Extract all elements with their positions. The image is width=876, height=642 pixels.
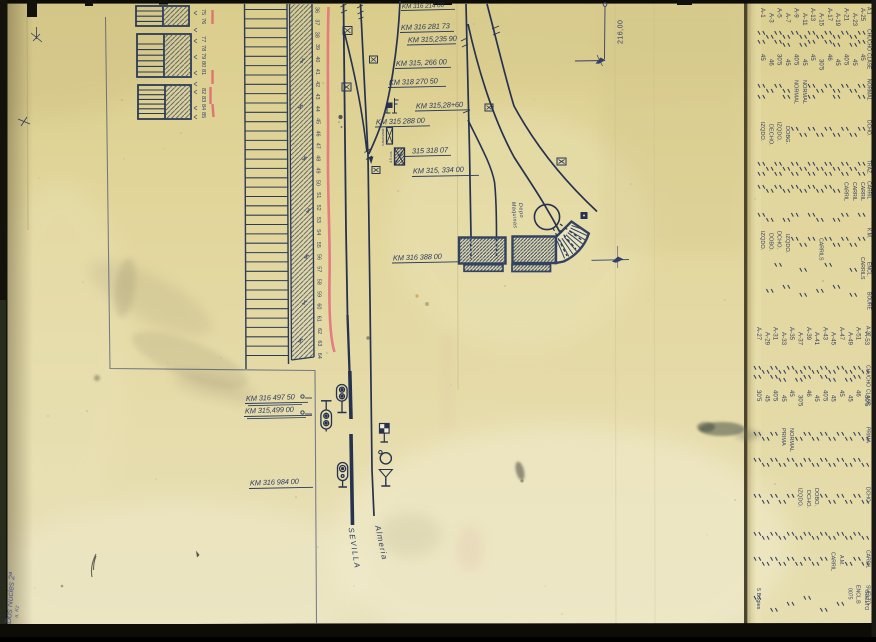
svg-text:KM 318 270 50: KM 318 270 50 (389, 76, 439, 87)
svg-text:46: 46 (314, 131, 320, 137)
svg-text:46: 46 (767, 59, 773, 66)
svg-text:NORMAL: NORMAL (866, 79, 872, 101)
svg-text:A-7: A-7 (784, 13, 791, 23)
svg-text:30’5: 30’5 (755, 390, 761, 402)
svg-text:45: 45 (788, 390, 794, 397)
svg-text:TRAZ.: TRAZ. (866, 160, 872, 174)
svg-text:A-43: A-43 (821, 327, 828, 341)
svg-text:63: 63 (316, 340, 322, 346)
svg-text:30’5: 30’5 (776, 54, 782, 66)
svg-text:30’5: 30’5 (797, 395, 803, 407)
svg-text:77: 77 (200, 36, 206, 42)
svg-text:84: 84 (200, 104, 206, 110)
svg-text:50: 50 (315, 180, 321, 186)
svg-text:DCHO.: DCHO. (866, 120, 872, 136)
svg-text:79: 79 (200, 53, 206, 59)
svg-text:A-13: A-13 (809, 8, 816, 22)
svg-text:45: 45 (830, 395, 836, 402)
svg-text:A-49: A-49 (846, 332, 853, 346)
svg-text:46: 46 (826, 54, 832, 61)
svg-text:KM 316 281 73: KM 316 281 73 (401, 21, 451, 32)
svg-text:45: 45 (846, 395, 852, 402)
svg-text:60: 60 (316, 303, 322, 309)
svg-text:40’5: 40’5 (772, 390, 778, 402)
svg-text:A.1: A.1 (866, 7, 872, 15)
svg-text:45: 45 (763, 395, 769, 402)
svg-text:44: 44 (314, 106, 320, 112)
svg-text:45: 45 (780, 395, 786, 402)
svg-text:81: 81 (200, 69, 206, 75)
svg-text:DOBO.: DOBO. (813, 488, 819, 506)
svg-text:62: 62 (316, 328, 322, 334)
svg-text:Depo: Depo (517, 203, 524, 219)
svg-text:80: 80 (200, 61, 206, 67)
svg-text:41: 41 (314, 69, 320, 75)
svg-text:ENCL.B: ENCL.B (855, 585, 861, 604)
svg-text:CARRIL: CARRIL (843, 182, 849, 201)
svg-text:DCHO.: DCHO. (776, 231, 782, 249)
svg-text:CARRIL: CARRIL (865, 550, 871, 569)
svg-text:83: 83 (200, 96, 206, 102)
svg-text:57: 57 (315, 266, 321, 272)
svg-text:K.M.: K.M. (866, 228, 872, 238)
svg-text:A-25: A-25 (859, 8, 866, 22)
svg-text:KM 316 984 00: KM 316 984 00 (250, 477, 300, 488)
svg-text:36: 36 (314, 7, 320, 13)
svg-text:A-9: A-9 (792, 8, 799, 18)
svg-text:45: 45 (801, 59, 807, 66)
svg-text:KM 315,28+60: KM 315,28+60 (416, 100, 464, 111)
svg-text:A-47: A-47 (838, 327, 845, 341)
svg-text:NORMAL: NORMAL (801, 80, 807, 104)
svg-text:DCHO.: DCHO. (805, 490, 811, 508)
svg-text:CARRIL: CARRIL (866, 181, 872, 200)
svg-text:78: 78 (200, 45, 206, 51)
svg-text:64: 64 (316, 353, 322, 359)
svg-text:KM 315, 266 00: KM 315, 266 00 (396, 57, 448, 68)
svg-text:A-39: A-39 (805, 327, 812, 341)
svg-text:49: 49 (315, 168, 321, 174)
svg-text:37: 37 (314, 19, 320, 25)
svg-text:61: 61 (316, 316, 322, 322)
svg-text:45: 45 (809, 54, 815, 61)
svg-text:KM 316 497 50: KM 316 497 50 (246, 392, 296, 403)
svg-text:A-37: A-37 (797, 332, 804, 346)
svg-text:KM 316 388 00: KM 316 388 00 (393, 252, 443, 263)
svg-text:CARRILS: CARRILS (859, 257, 865, 280)
svg-text:PRIMA: PRIMA (865, 427, 871, 444)
svg-text:216,00: 216,00 (618, 20, 625, 44)
svg-text:53: 53 (315, 217, 321, 223)
svg-text:KM 315,235 90: KM 315,235 90 (408, 34, 458, 45)
svg-text:45: 45 (834, 59, 840, 66)
svg-text:46: 46 (855, 390, 861, 397)
svg-text:A-31: A-31 (772, 327, 779, 341)
svg-text:KM 315 288 00: KM 315 288 00 (376, 116, 426, 127)
svg-text:48: 48 (315, 155, 321, 161)
svg-text:42: 42 (314, 81, 320, 87)
svg-text:CARRIL: CARRIL (859, 182, 865, 201)
svg-text:A-29: A-29 (763, 332, 770, 346)
svg-text:A-3: A-3 (767, 13, 774, 23)
svg-text:ENCL.: ENCL. (866, 262, 872, 277)
svg-text:SUELTO: SUELTO (865, 585, 871, 605)
svg-text:CLASE: CLASE (865, 389, 871, 406)
svg-text:39: 39 (314, 44, 320, 50)
svg-text:a. Kz: a. Kz (14, 605, 21, 618)
svg-text:A-51: A-51 (855, 327, 862, 341)
svg-text:CARRILS: CARRILS (818, 238, 824, 261)
svg-text:45: 45 (859, 54, 865, 61)
svg-text:45: 45 (314, 118, 320, 124)
svg-text:KM 315, 334 00: KM 315, 334 00 (413, 165, 465, 176)
svg-text:A-23: A-23 (851, 13, 858, 27)
svg-text:s.avanzada: s.avanzada (381, 129, 385, 146)
svg-text:A-35: A-35 (788, 327, 795, 341)
svg-text:BOURE: BOURE (866, 292, 872, 310)
svg-text:82: 82 (200, 88, 206, 94)
svg-text:DOBO.: DOBO. (767, 233, 773, 251)
svg-text:52: 52 (315, 205, 321, 211)
svg-text:A-15: A-15 (818, 13, 825, 27)
svg-text:A-17: A-17 (826, 8, 833, 22)
svg-text:315 318 07: 315 318 07 (412, 145, 449, 155)
svg-text:IZQDO.: IZQDO. (759, 122, 765, 142)
svg-text:59: 59 (316, 291, 322, 297)
svg-text:CHUCHO: CHUCHO (865, 365, 871, 387)
svg-text:CLASE: CLASE (866, 53, 872, 70)
svg-text:45: 45 (851, 59, 857, 66)
svg-text:43: 43 (314, 94, 320, 100)
svg-text:76: 76 (200, 18, 206, 24)
svg-text:40’5: 40’5 (843, 54, 849, 66)
svg-text:A-19: A-19 (834, 13, 841, 27)
svg-text:DCHO.: DCHO. (865, 487, 871, 503)
svg-text:NORMAL: NORMAL (792, 80, 798, 104)
svg-text:IZQDO.: IZQDO. (759, 231, 765, 251)
svg-text:DECHO.: DECHO. (767, 124, 773, 146)
svg-text:A-41: A-41 (813, 332, 820, 346)
svg-text:45: 45 (813, 395, 819, 402)
svg-text:30’5: 30’5 (818, 59, 824, 71)
svg-text:45: 45 (759, 54, 765, 61)
svg-text:55: 55 (315, 242, 321, 248)
svg-text:51: 51 (315, 192, 321, 198)
svg-text:PRIMA: PRIMA (780, 428, 786, 446)
svg-text:85: 85 (200, 112, 206, 118)
svg-text:DOBG.: DOBG. (784, 126, 790, 144)
svg-text:58: 58 (315, 279, 321, 285)
svg-text:IZQDO.: IZQDO. (784, 234, 790, 254)
svg-text:CARRIL: CARRIL (851, 182, 857, 201)
svg-text:A-21: A-21 (843, 8, 850, 22)
svg-text:45: 45 (784, 59, 790, 66)
svg-text:0075: 0075 (846, 588, 852, 600)
svg-text:A-45: A-45 (830, 332, 837, 346)
svg-text:IZQDO.: IZQDO. (776, 122, 782, 142)
svg-text:56: 56 (315, 254, 321, 260)
svg-text:75: 75 (200, 9, 206, 15)
svg-text:CARRIL: CARRIL (830, 552, 836, 571)
svg-text:38: 38 (314, 32, 320, 38)
svg-text:5 Bogies: 5 Bogies (755, 588, 761, 610)
svg-text:A-5: A-5 (776, 8, 783, 18)
svg-text:40: 40 (314, 56, 320, 62)
svg-text:IZQDO.: IZQDO. (797, 488, 803, 508)
svg-text:A-1: A-1 (759, 8, 766, 18)
svg-text:54: 54 (315, 229, 321, 235)
svg-text:47: 47 (315, 143, 321, 149)
svg-text:A-27: A-27 (865, 326, 871, 337)
svg-text:NORMAL: NORMAL (788, 428, 794, 452)
svg-text:CHUCHO: CHUCHO (866, 29, 872, 51)
svg-text:A-27: A-27 (755, 327, 762, 341)
svg-text:A-11: A-11 (801, 13, 808, 26)
svg-text:A.M.: A.M. (838, 555, 844, 566)
svg-text:46: 46 (805, 390, 811, 397)
svg-text:40’5: 40’5 (821, 390, 827, 402)
svg-text:45: 45 (838, 390, 844, 397)
svg-text:4.5 o.m.: 4.5 o.m. (389, 151, 393, 163)
svg-text:40’5: 40’5 (792, 54, 798, 66)
svg-text:A-33: A-33 (780, 332, 787, 346)
svg-text:KM 315,499 00: KM 315,499 00 (245, 405, 295, 416)
